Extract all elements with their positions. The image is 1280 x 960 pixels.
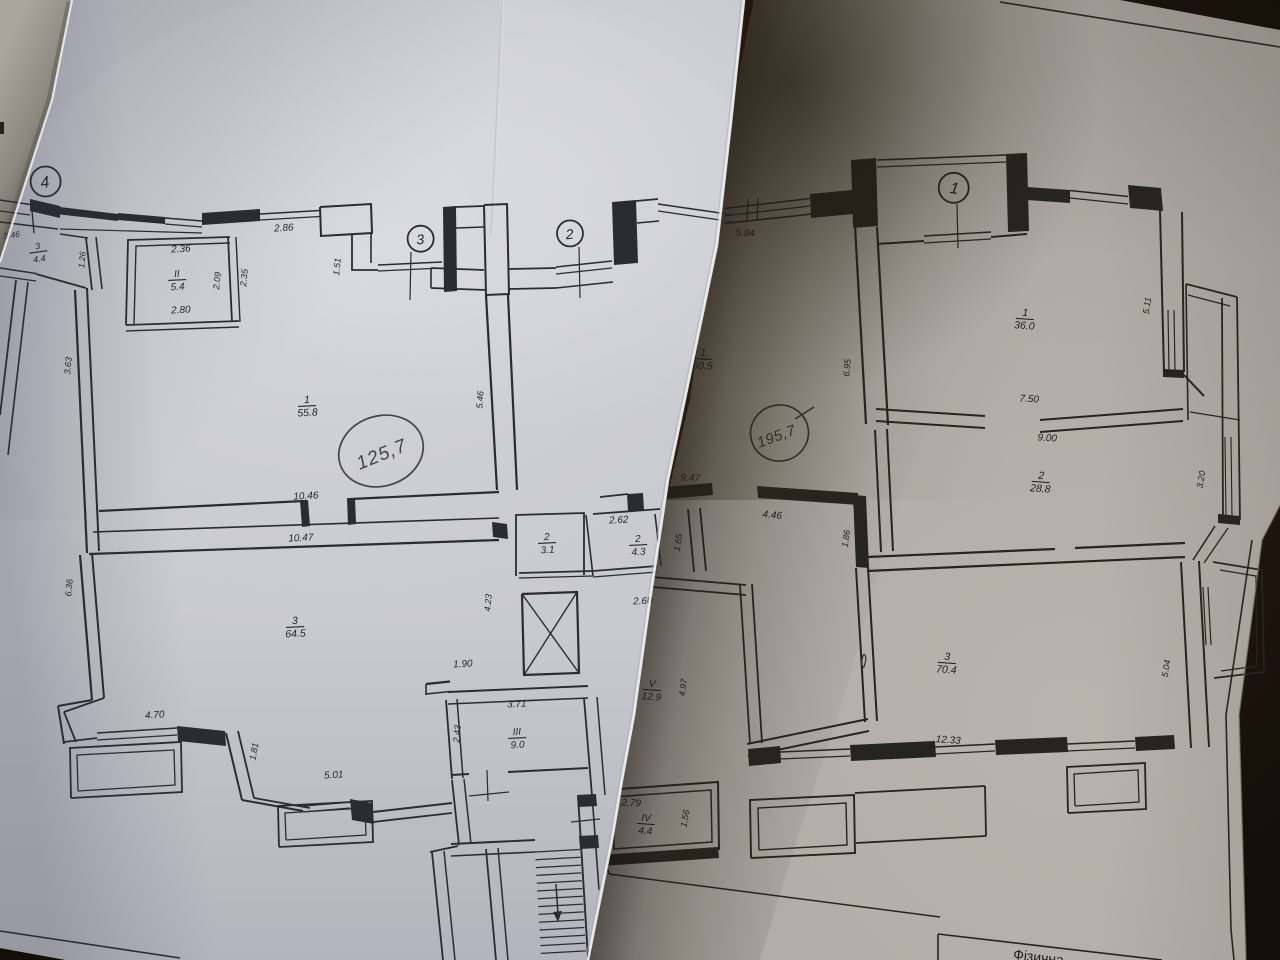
svg-text:10.47: 10.47	[288, 532, 314, 544]
svg-text:1: 1	[304, 394, 310, 406]
svg-text:5.4: 5.4	[170, 282, 185, 294]
svg-text:1.51: 1.51	[331, 257, 343, 275]
svg-text:2.86: 2.86	[273, 222, 295, 234]
svg-text:2.80: 2.80	[170, 304, 191, 316]
svg-text:2.09: 2.09	[211, 271, 223, 290]
svg-text:1.26: 1.26	[76, 251, 87, 269]
svg-text:6.36: 6.36	[63, 579, 74, 597]
svg-text:5.01: 5.01	[324, 769, 344, 781]
svg-text:1.90: 1.90	[453, 658, 473, 670]
svg-text:II: II	[174, 269, 180, 280]
svg-text:2: 2	[634, 534, 642, 545]
svg-text:3: 3	[292, 615, 299, 627]
svg-text:2.36: 2.36	[170, 243, 191, 255]
svg-text:4.70: 4.70	[145, 709, 166, 721]
svg-text:2.35: 2.35	[238, 267, 250, 287]
svg-text:3: 3	[416, 231, 425, 248]
svg-text:9.0: 9.0	[510, 740, 525, 752]
svg-text:2.62: 2.62	[608, 514, 629, 526]
svg-text:64.5: 64.5	[285, 627, 306, 640]
svg-text:2: 2	[543, 532, 551, 543]
svg-text:70.4: 70.4	[936, 663, 957, 676]
svg-text:3: 3	[944, 651, 951, 663]
svg-text:5.46: 5.46	[474, 391, 485, 409]
svg-text:55.8: 55.8	[297, 406, 318, 419]
svg-text:4.23: 4.23	[482, 594, 493, 612]
svg-text:2: 2	[564, 226, 574, 243]
svg-text:4.3: 4.3	[631, 547, 646, 559]
svg-text:12.33: 12.33	[935, 734, 961, 747]
svg-text:10.46: 10.46	[293, 490, 319, 502]
svg-text:III: III	[512, 727, 521, 738]
svg-text:4.4: 4.4	[32, 253, 46, 265]
svg-text:2.43: 2.43	[451, 725, 463, 744]
svg-text:3.1: 3.1	[540, 545, 554, 557]
svg-text:3.63: 3.63	[62, 357, 73, 375]
svg-text:3.71: 3.71	[507, 699, 527, 711]
